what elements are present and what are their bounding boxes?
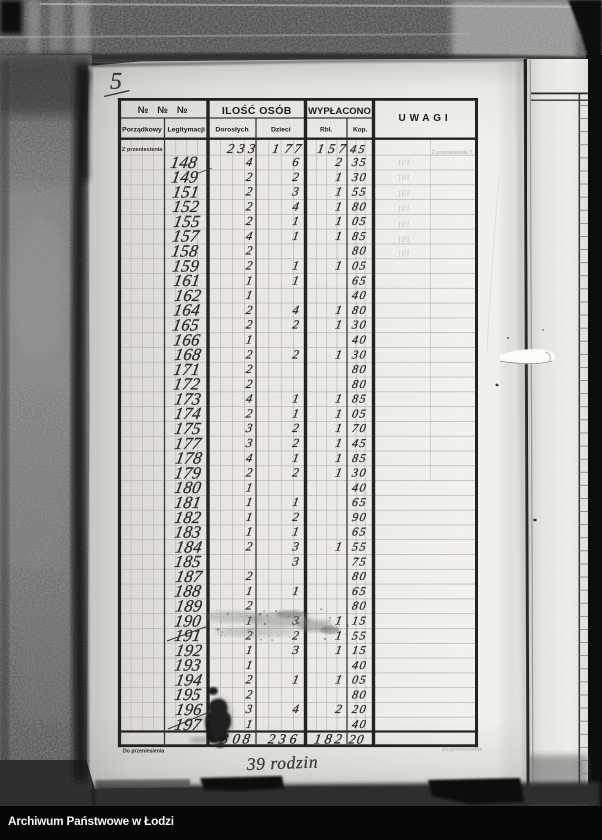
svg-text:Z przeniesienia ?: Z przeniesienia ? (432, 150, 473, 156)
svg-text:Do przeniesienia: Do przeniesienia (123, 749, 164, 755)
svg-text:5: 5 (110, 69, 122, 95)
svg-text:WYPŁACONO: WYPŁACONO (308, 106, 371, 117)
svg-text:Archiwum Państwowe w Łodzi: Archiwum Państwowe w Łodzi (8, 814, 174, 828)
svg-text:Dzieci: Dzieci (271, 127, 291, 134)
svg-text:101: 101 (397, 233, 411, 244)
svg-text:101: 101 (397, 171, 411, 182)
svg-text:197: 197 (173, 715, 204, 734)
svg-text:Rbl.: Rbl. (320, 127, 332, 134)
svg-text:101: 101 (397, 202, 411, 213)
svg-text:101: 101 (397, 187, 411, 198)
svg-text:39 rodzin: 39 rodzin (245, 752, 318, 775)
svg-text:101: 101 (397, 156, 411, 167)
svg-text:ILOŚĆ OSÓB: ILOŚĆ OSÓB (222, 104, 292, 117)
svg-text:Legitymacji: Legitymacji (167, 127, 205, 134)
svg-text:Dorosłych: Dorosłych (215, 127, 248, 134)
svg-text:UWAGI: UWAGI (399, 113, 452, 124)
svg-text:Porządkowy: Porządkowy (122, 127, 162, 134)
svg-text:№№№: №№№ (138, 105, 197, 116)
svg-text:101: 101 (397, 218, 411, 229)
svg-text:Do przeniesienia: Do przeniesienia (442, 747, 482, 753)
svg-text:Kop.: Kop. (353, 127, 368, 134)
svg-text:101: 101 (397, 247, 411, 258)
svg-text:Z przeniesienia: Z przeniesienia (122, 147, 163, 153)
